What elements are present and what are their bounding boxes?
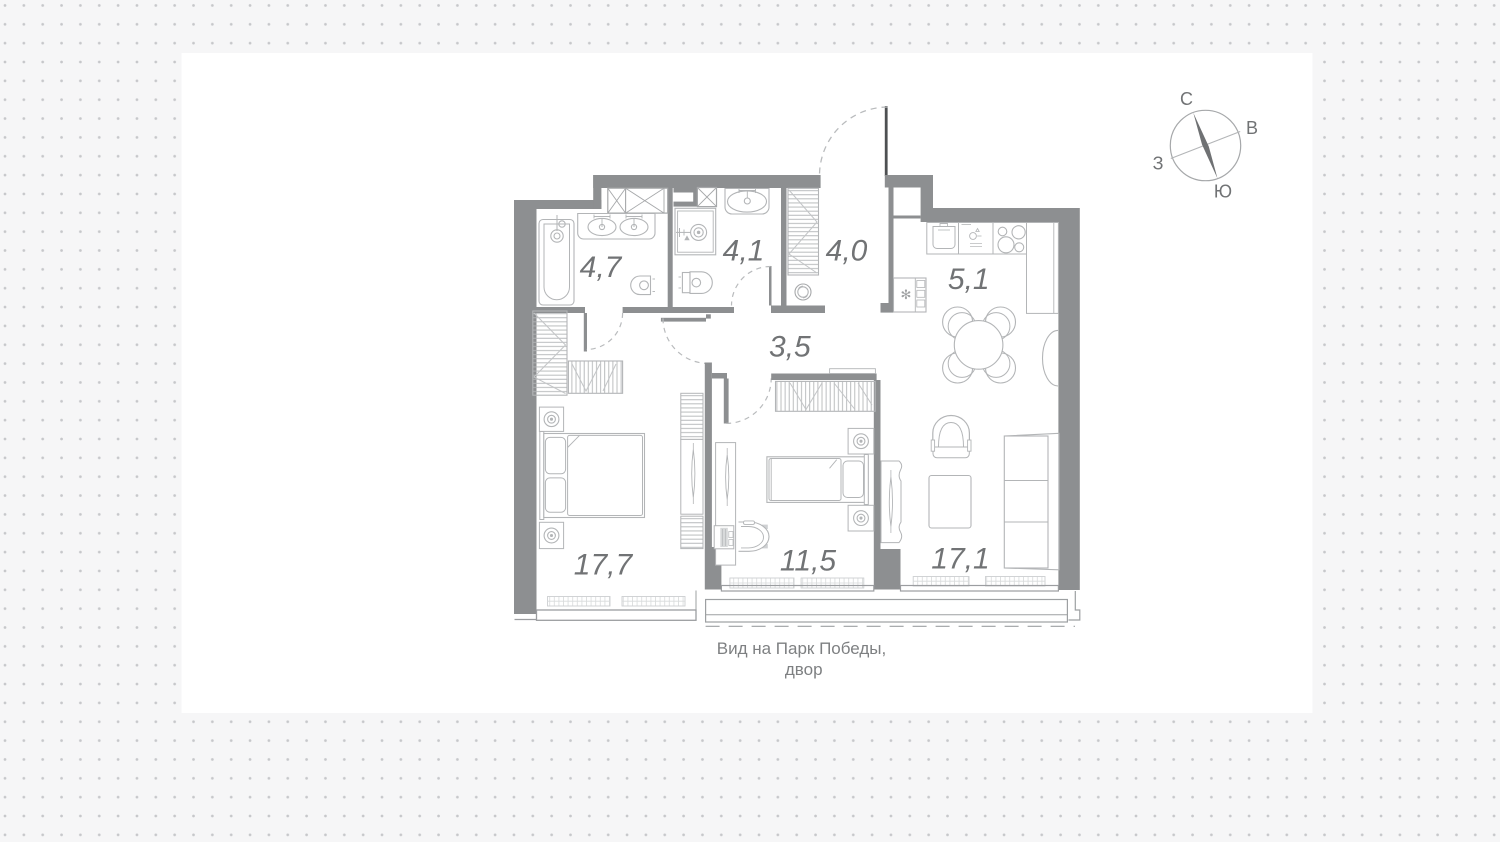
svg-text:Ю: Ю <box>1214 182 1232 202</box>
svg-text:3,5: 3,5 <box>769 331 811 364</box>
svg-text:двор: двор <box>785 660 823 679</box>
svg-text:4,0: 4,0 <box>826 235 868 268</box>
svg-text:5,1: 5,1 <box>948 263 990 296</box>
svg-text:✻: ✻ <box>901 287 912 302</box>
svg-text:17,1: 17,1 <box>931 543 989 576</box>
svg-text:Вид на Парк Победы,: Вид на Парк Победы, <box>717 639 887 658</box>
svg-text:З: З <box>1153 154 1164 174</box>
svg-text:4,1: 4,1 <box>723 235 765 268</box>
svg-text:С: С <box>1180 89 1193 109</box>
svg-text:11,5: 11,5 <box>780 545 836 578</box>
svg-text:В: В <box>1246 118 1258 138</box>
svg-text:17,7: 17,7 <box>574 549 634 582</box>
svg-text:4,7: 4,7 <box>580 251 623 284</box>
